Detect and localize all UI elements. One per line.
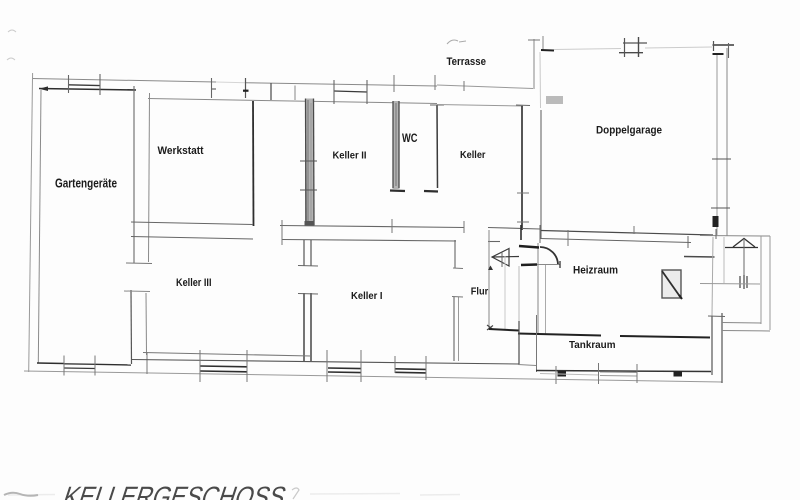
- svg-text:Keller II: Keller II: [333, 150, 367, 162]
- svg-text:KELLERGESCHOSS: KELLERGESCHOSS: [59, 482, 290, 500]
- svg-text:Keller III: Keller III: [176, 277, 212, 289]
- svg-text:Keller: Keller: [460, 150, 486, 161]
- svg-text:WC: WC: [402, 133, 418, 145]
- svg-text:Tankraum: Tankraum: [569, 339, 616, 351]
- svg-text:Doppelgarage: Doppelgarage: [596, 125, 662, 137]
- svg-text:Terrasse: Terrasse: [447, 56, 487, 68]
- svg-text:Flur: Flur: [471, 287, 488, 298]
- svg-text:Werkstatt: Werkstatt: [158, 145, 204, 157]
- svg-text:Keller I: Keller I: [351, 291, 383, 302]
- svg-text:Gartengeräte: Gartengeräte: [55, 176, 117, 191]
- svg-text:Heizraum: Heizraum: [573, 265, 618, 277]
